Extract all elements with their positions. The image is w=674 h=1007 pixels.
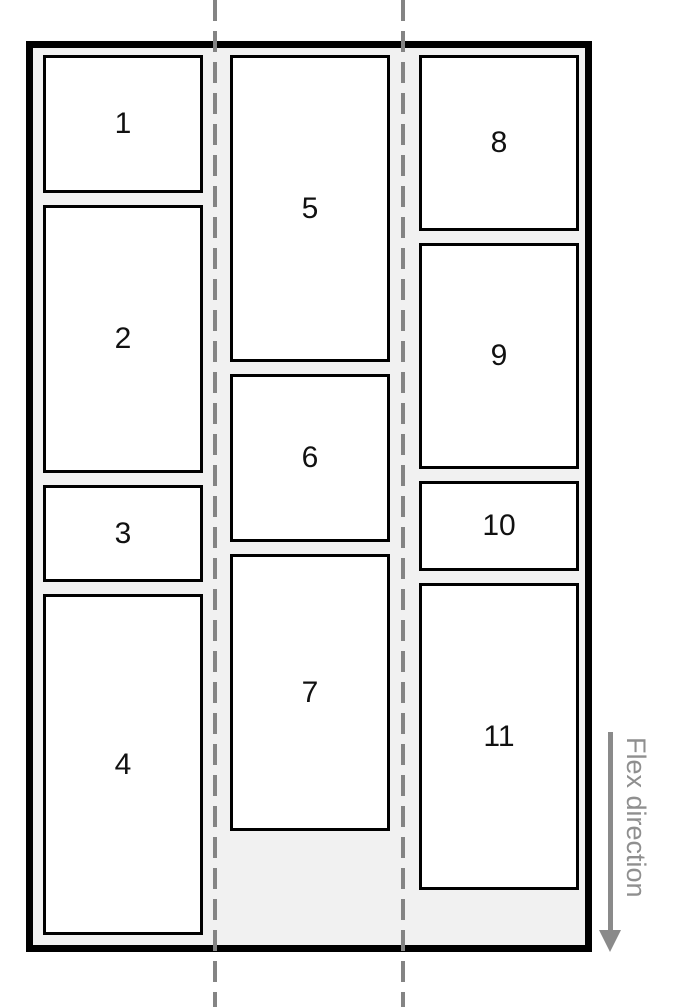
flex-item-9-label: 9 <box>491 339 508 373</box>
flex-item-2-label: 2 <box>115 322 132 356</box>
flex-direction-label: Flex direction <box>622 737 649 898</box>
flex-column-1: 1 2 3 4 <box>43 55 203 935</box>
column-boundary-dashed-line-1 <box>213 0 217 1007</box>
column-boundary-dashed-line-2 <box>401 0 405 1007</box>
flex-item-11: 11 <box>419 583 579 890</box>
flex-item-9: 9 <box>419 243 579 469</box>
flex-item-3: 3 <box>43 485 203 582</box>
flex-item-2: 2 <box>43 205 203 473</box>
flex-container: 1 2 3 4 5 6 7 8 <box>26 41 592 952</box>
flex-column-2: 5 6 7 <box>230 55 390 831</box>
flex-item-8: 8 <box>419 55 579 231</box>
flex-item-8-label: 8 <box>491 126 508 160</box>
flex-item-6: 6 <box>230 374 390 542</box>
flex-column-3: 8 9 10 11 <box>419 55 579 890</box>
flex-item-5: 5 <box>230 55 390 362</box>
flex-item-3-label: 3 <box>115 517 132 551</box>
flex-item-1: 1 <box>43 55 203 193</box>
flex-direction-arrow-down-icon <box>599 930 621 952</box>
flex-direction-arrow-shaft <box>608 732 613 930</box>
flexbox-column-wrap-diagram: 1 2 3 4 5 6 7 8 <box>0 0 674 1007</box>
flex-item-1-label: 1 <box>115 107 132 141</box>
flex-item-5-label: 5 <box>302 192 319 226</box>
flex-item-4: 4 <box>43 594 203 935</box>
flex-item-4-label: 4 <box>115 748 132 782</box>
flex-item-6-label: 6 <box>302 441 319 475</box>
flex-item-10: 10 <box>419 481 579 571</box>
flex-item-11-label: 11 <box>483 720 514 754</box>
flex-item-7: 7 <box>230 554 390 831</box>
flex-item-7-label: 7 <box>302 676 319 710</box>
flex-item-10-label: 10 <box>482 509 515 543</box>
